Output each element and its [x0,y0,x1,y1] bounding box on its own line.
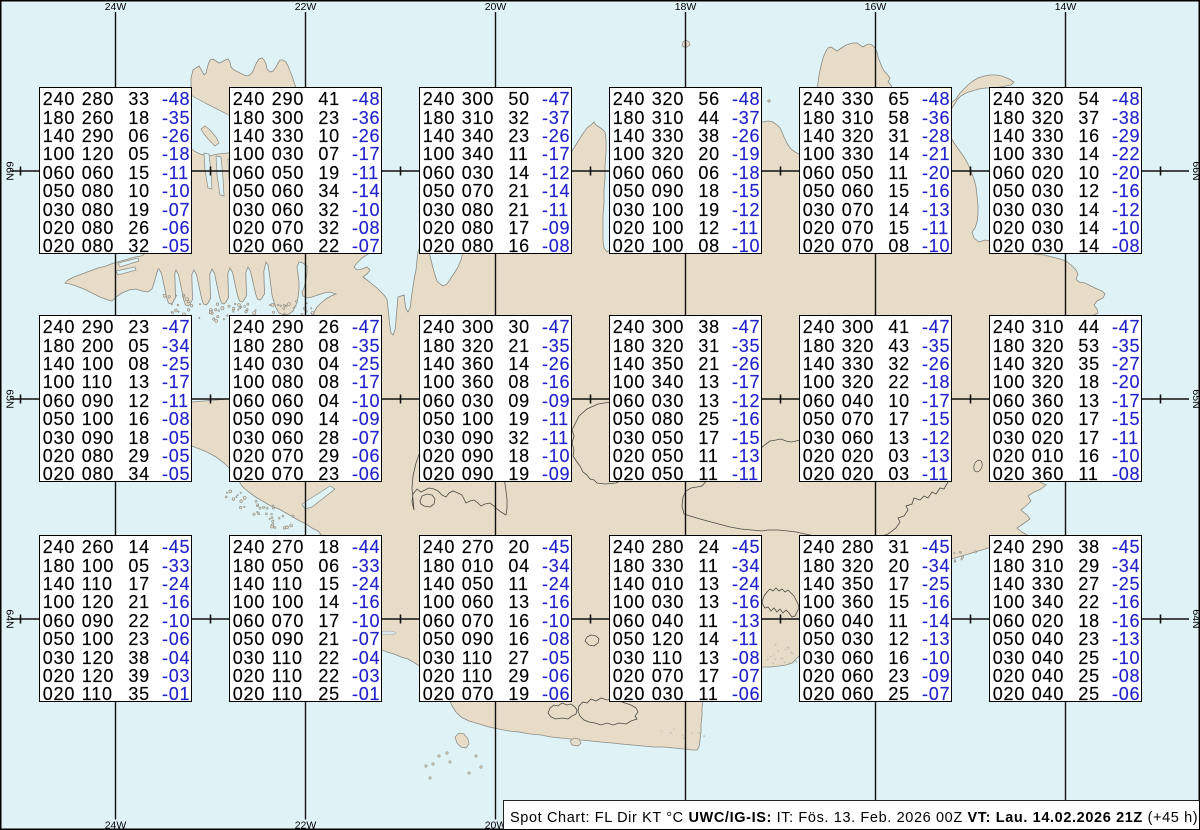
svg-text:18W: 18W [675,1,697,13]
svg-text:20W: 20W [485,1,507,13]
svg-text:22W: 22W [295,1,317,13]
svg-text:22W: 22W [295,820,317,830]
svg-text:24W: 24W [105,1,127,13]
svg-text:24W: 24W [105,820,127,830]
svg-text:14W: 14W [1055,1,1077,13]
svg-text:64N: 64N [4,609,16,628]
svg-text:66N: 66N [4,161,16,180]
svg-text:65N: 65N [4,389,16,408]
svg-text:16W: 16W [865,1,887,13]
